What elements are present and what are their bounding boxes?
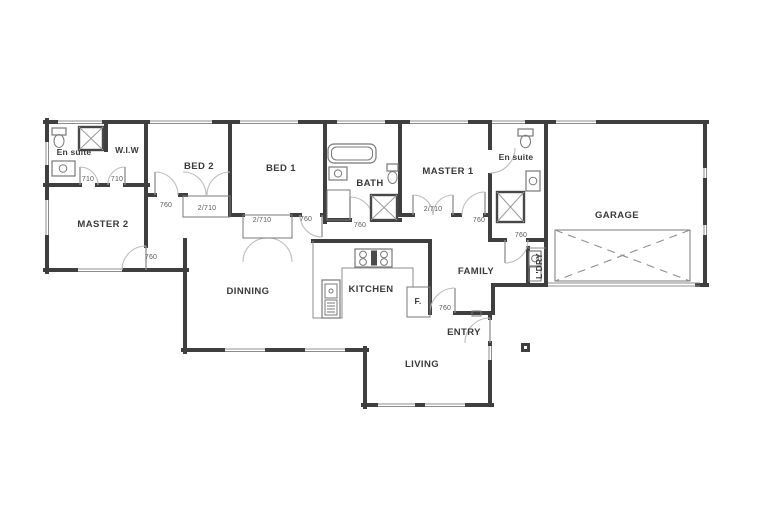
room-label-ensuite-right: En suite [499, 152, 534, 162]
toilet-icon [52, 128, 66, 147]
vanity-icon [526, 171, 540, 191]
dim-bed1-wardrobe: 2/710 [253, 217, 272, 224]
car-space-marker [555, 230, 690, 281]
dim-kitchen-entry: 760 [439, 305, 451, 312]
dim-bed1-door: 760 [300, 216, 312, 223]
stove-icon [355, 249, 392, 267]
dim-bath-door: 760 [354, 222, 366, 229]
dim-wiw-left: 710 [82, 176, 94, 183]
dim-laundry-door: 760 [515, 232, 527, 239]
room-label-garage: GARAGE [595, 210, 639, 221]
room-label-master2: MASTER 2 [77, 219, 128, 230]
floor-plan-page: En suite W.I.W BED 2 BED 1 BATH MASTER 1… [0, 0, 768, 512]
room-label-wiw: W.I.W [115, 145, 139, 155]
porch-post [521, 343, 530, 352]
room-label-bath: BATH [356, 178, 383, 189]
room-label-family: FAMILY [458, 266, 495, 277]
room-label-fridge: F. [414, 296, 421, 306]
dim-bed2-door: 760 [160, 202, 172, 209]
toilet-icon [518, 129, 533, 148]
room-label-kitchen: KITCHEN [348, 284, 393, 295]
vanity-icon [52, 161, 75, 176]
room-label-living: LIVING [405, 359, 439, 370]
bath-shower-icon [371, 195, 397, 220]
shower-icon [497, 192, 524, 222]
bath-vanity-icon [329, 167, 347, 180]
dim-wiw-right: 710 [111, 176, 123, 183]
garage-door [548, 283, 700, 286]
room-label-laundry: L'DRY [534, 253, 544, 279]
sink-icon [322, 280, 340, 318]
room-label-bed1: BED 1 [266, 163, 296, 174]
dim-master1-door: 2/710 [424, 206, 443, 213]
bathtub-icon [328, 144, 376, 163]
bath-toilet-icon [387, 164, 398, 184]
dim-master2-door: 760 [145, 254, 157, 261]
room-label-dinning: DINNING [227, 286, 270, 297]
room-label-ensuite-left: En suite [57, 147, 92, 157]
floor-plan: En suite W.I.W BED 2 BED 1 BATH MASTER 1… [0, 0, 768, 512]
linen-closet [327, 190, 350, 220]
dim-bed2-wardrobe: 2/710 [198, 205, 217, 212]
room-label-bed2: BED 2 [184, 161, 214, 172]
room-label-entry: ENTRY [447, 327, 481, 338]
dim-hall-family: 760 [473, 217, 485, 224]
room-label-master1: MASTER 1 [422, 166, 474, 177]
